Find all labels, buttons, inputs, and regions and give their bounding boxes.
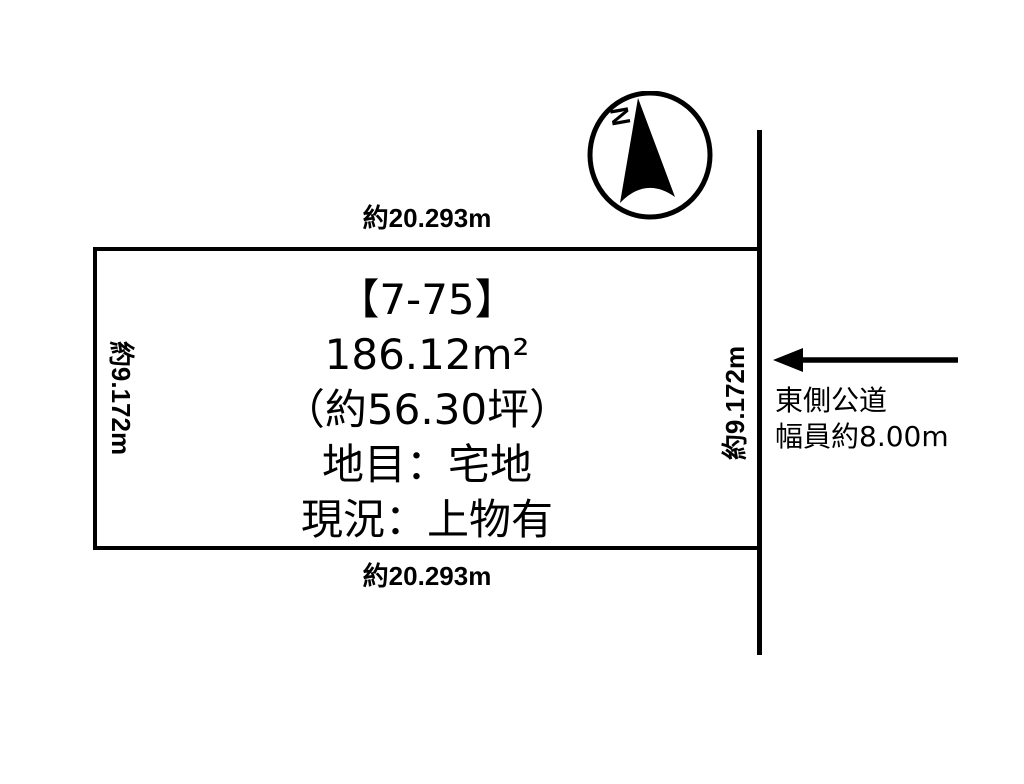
- area-tsubo: （約56.30坪）: [93, 382, 761, 437]
- road-name: 東側公道: [775, 383, 949, 419]
- lot-number: 【7-75】: [93, 272, 761, 327]
- road-width: 幅員約8.00m: [775, 419, 949, 455]
- land-category: 地目：宅地: [93, 437, 761, 492]
- compass-icon: N: [586, 91, 716, 221]
- land-plot-diagram: N 【7-75】 186.12m² （約56.30坪） 地目：宅地 現況：上物有…: [0, 0, 1024, 784]
- road-direction-arrow-icon: [765, 342, 965, 378]
- area-square-meters: 186.12m²: [93, 327, 761, 382]
- dimension-bottom: 約20.293m: [93, 561, 761, 591]
- dimension-right: 約9.172m: [720, 346, 750, 460]
- road-label-block: 東側公道 幅員約8.00m: [775, 383, 949, 455]
- dimension-top: 約20.293m: [93, 203, 761, 233]
- plot-info-block: 【7-75】 186.12m² （約56.30坪） 地目：宅地 現況：上物有: [93, 272, 761, 547]
- dimension-left: 約9.172m: [106, 341, 136, 455]
- current-state: 現況：上物有: [93, 492, 761, 547]
